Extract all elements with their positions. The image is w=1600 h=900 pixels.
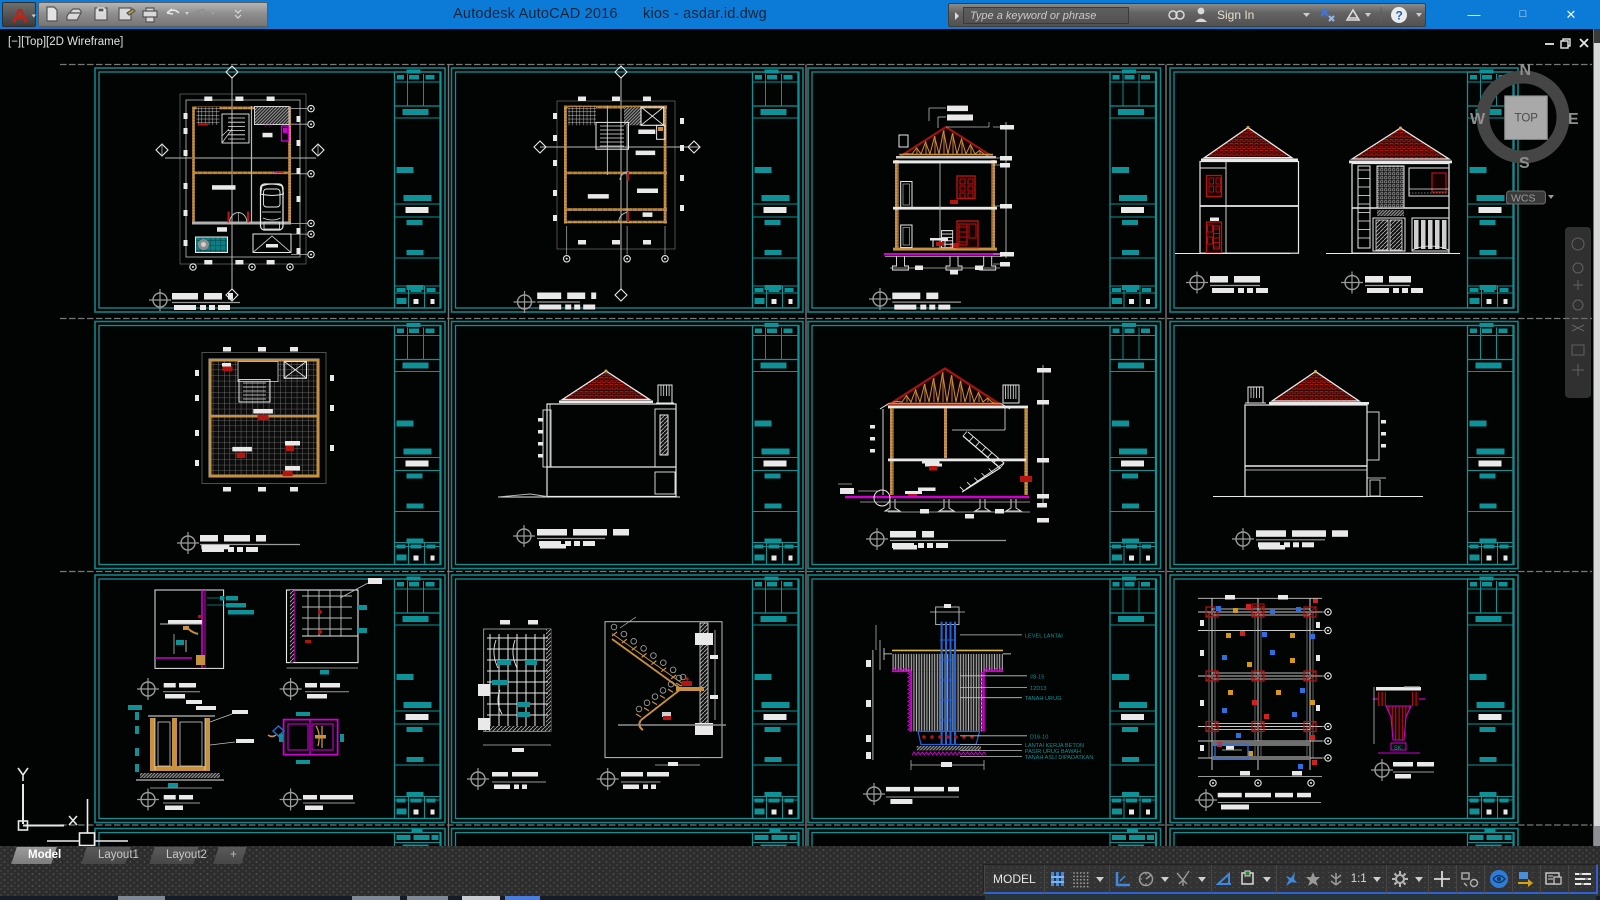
svg-text:N: N: [1520, 62, 1532, 79]
svg-text:PASIR URUG BAWAH: PASIR URUG BAWAH: [1025, 749, 1081, 755]
svg-text:TANAH URUG: TANAH URUG: [1025, 696, 1062, 702]
svg-text:S: S: [1519, 155, 1530, 172]
svg-text:?: ?: [1396, 9, 1403, 23]
svg-text:LEVEL LANTAI: LEVEL LANTAI: [1025, 633, 1063, 639]
svg-text:W: W: [1470, 111, 1486, 128]
svg-text:TOP: TOP: [1515, 113, 1539, 125]
svg-text:Sign In: Sign In: [1217, 8, 1254, 22]
svg-text:#8-15: #8-15: [1030, 674, 1044, 680]
svg-text:D16-10: D16-10: [1030, 734, 1048, 740]
svg-text:1=1=: 1=1=: [264, 123, 274, 128]
svg-text:SK: SK: [1394, 746, 1402, 752]
svg-text:E: E: [1568, 111, 1579, 128]
svg-text:TANAH ASLI DIPADATKAN: TANAH ASLI DIPADATKAN: [1025, 755, 1093, 761]
svg-text:WCS: WCS: [1511, 193, 1536, 205]
svg-text:12D13: 12D13: [1030, 686, 1046, 692]
